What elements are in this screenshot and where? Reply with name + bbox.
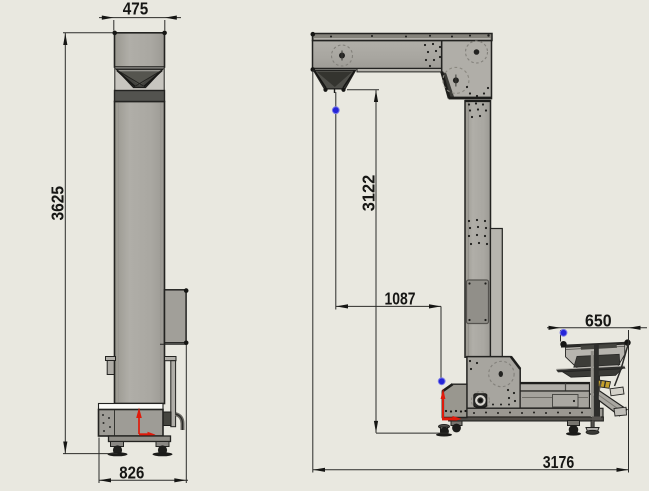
svg-text:1087: 1087 xyxy=(385,289,416,309)
svg-text:826: 826 xyxy=(119,463,144,483)
svg-text:3176: 3176 xyxy=(543,452,575,472)
svg-text:475: 475 xyxy=(123,0,149,18)
svg-text:650: 650 xyxy=(585,311,612,331)
svg-text:3122: 3122 xyxy=(358,175,378,212)
svg-text:3625: 3625 xyxy=(47,186,67,221)
